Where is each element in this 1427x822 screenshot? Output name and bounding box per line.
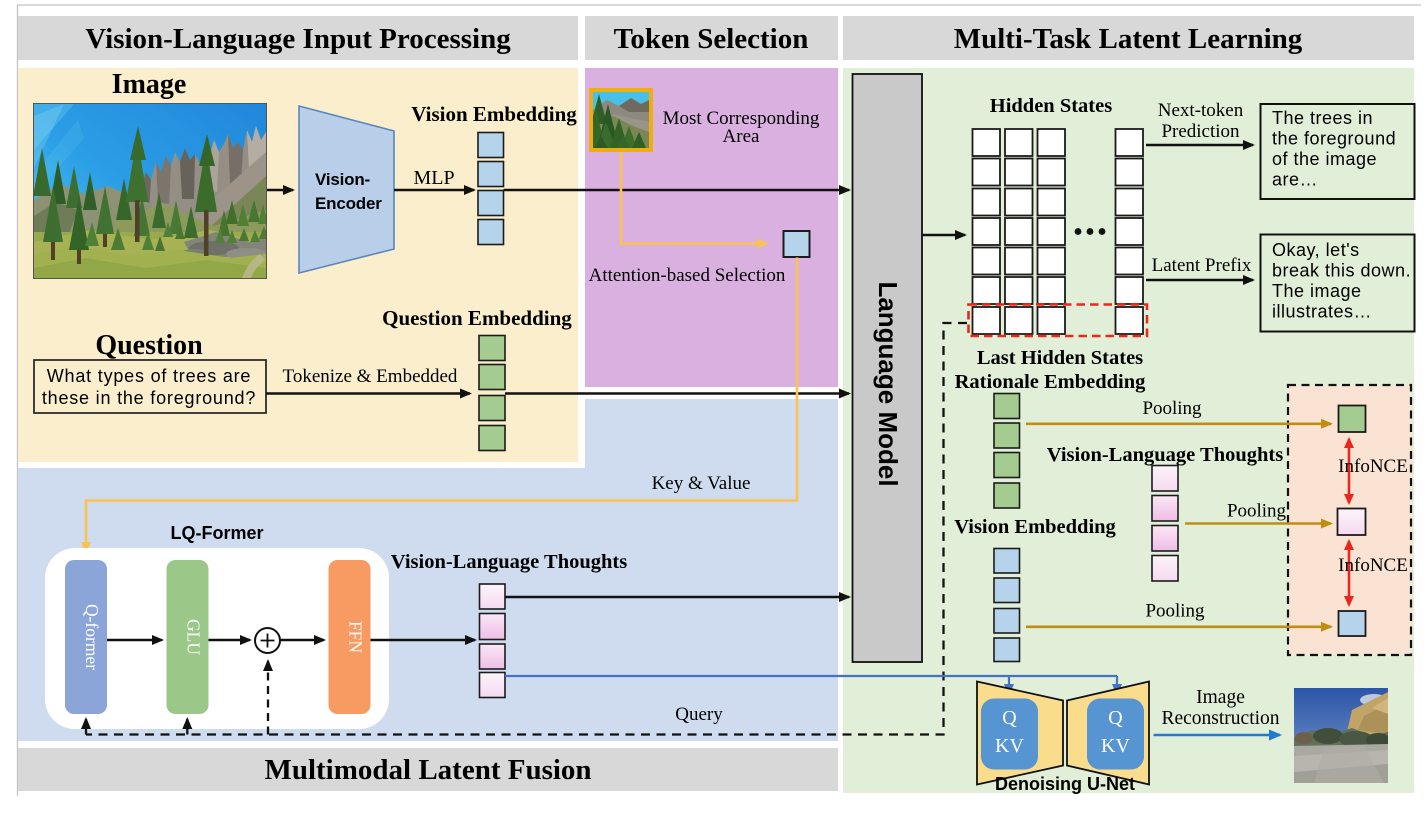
svg-text:Multimodal Latent Fusion: Multimodal Latent Fusion bbox=[264, 754, 591, 786]
svg-text:Latent Prefix: Latent Prefix bbox=[1152, 255, 1252, 276]
svg-text:are…: are… bbox=[1272, 170, 1318, 190]
svg-text:MLP: MLP bbox=[413, 167, 454, 189]
svg-text:LQ-Former: LQ-Former bbox=[170, 523, 263, 543]
svg-text:Rationale Embedding: Rationale Embedding bbox=[955, 371, 1147, 393]
svg-text:What types of trees are: What types of trees are bbox=[47, 366, 251, 386]
svg-text:Key & Value: Key & Value bbox=[652, 473, 751, 494]
svg-text:Q: Q bbox=[1108, 707, 1123, 729]
svg-text:Token Selection: Token Selection bbox=[614, 23, 809, 55]
svg-text:Okay, let's: Okay, let's bbox=[1272, 240, 1360, 260]
svg-text:InfoNCE: InfoNCE bbox=[1338, 456, 1408, 477]
svg-text:Image: Image bbox=[1196, 687, 1245, 708]
svg-text:Tokenize & Embedded: Tokenize & Embedded bbox=[283, 366, 458, 387]
svg-text:Language Model: Language Model bbox=[873, 281, 903, 486]
svg-text:Image: Image bbox=[112, 69, 187, 100]
svg-text:Last Hidden States: Last Hidden States bbox=[977, 347, 1143, 369]
svg-text:Area: Area bbox=[723, 126, 760, 147]
svg-text:Pooling: Pooling bbox=[1142, 398, 1202, 419]
svg-text:these in the foreground?: these in the foreground? bbox=[42, 388, 256, 408]
svg-text:Q-former: Q-former bbox=[82, 604, 102, 670]
svg-text:InfoNCE: InfoNCE bbox=[1338, 555, 1408, 576]
svg-text:Question Embedding: Question Embedding bbox=[382, 306, 572, 330]
svg-text:KV: KV bbox=[995, 735, 1024, 757]
svg-text:Encoder: Encoder bbox=[315, 194, 382, 213]
svg-text:Prediction: Prediction bbox=[1161, 121, 1240, 142]
svg-text:Question: Question bbox=[95, 330, 203, 361]
svg-text:Reconstruction: Reconstruction bbox=[1161, 708, 1279, 729]
svg-text:FFN: FFN bbox=[346, 621, 366, 653]
svg-text:Pooling: Pooling bbox=[1227, 501, 1287, 522]
svg-text:break this down.: break this down. bbox=[1272, 261, 1411, 281]
svg-text:the foreground: the foreground bbox=[1272, 129, 1396, 149]
svg-text:Vision-Language Thoughts: Vision-Language Thoughts bbox=[391, 551, 627, 573]
svg-text:illustrates…: illustrates… bbox=[1272, 302, 1372, 322]
svg-text:Vision-: Vision- bbox=[315, 170, 370, 189]
svg-text:Denoising U-Net: Denoising U-Net bbox=[995, 774, 1135, 794]
svg-text:The image: The image bbox=[1272, 281, 1362, 301]
svg-text:Vision-Language Input Processi: Vision-Language Input Processing bbox=[85, 23, 511, 55]
svg-text:Pooling: Pooling bbox=[1145, 601, 1205, 622]
svg-text:Vision-Language Thoughts: Vision-Language Thoughts bbox=[1047, 444, 1283, 466]
svg-text:Vision Embedding: Vision Embedding bbox=[954, 516, 1116, 538]
svg-text:GLU: GLU bbox=[184, 619, 204, 655]
svg-text:Next-token: Next-token bbox=[1158, 100, 1244, 121]
svg-text:of the image: of the image bbox=[1272, 149, 1377, 169]
svg-text:Hidden States: Hidden States bbox=[990, 95, 1112, 117]
svg-text:Q: Q bbox=[1002, 707, 1017, 729]
svg-text:Attention-based Selection: Attention-based Selection bbox=[589, 265, 786, 286]
svg-text:Multi-Task Latent Learning: Multi-Task Latent Learning bbox=[954, 23, 1303, 55]
svg-text:KV: KV bbox=[1101, 735, 1130, 757]
svg-text:The trees in: The trees in bbox=[1272, 108, 1373, 128]
svg-text:Query: Query bbox=[675, 704, 723, 725]
svg-text:Vision Embedding: Vision Embedding bbox=[411, 102, 577, 126]
